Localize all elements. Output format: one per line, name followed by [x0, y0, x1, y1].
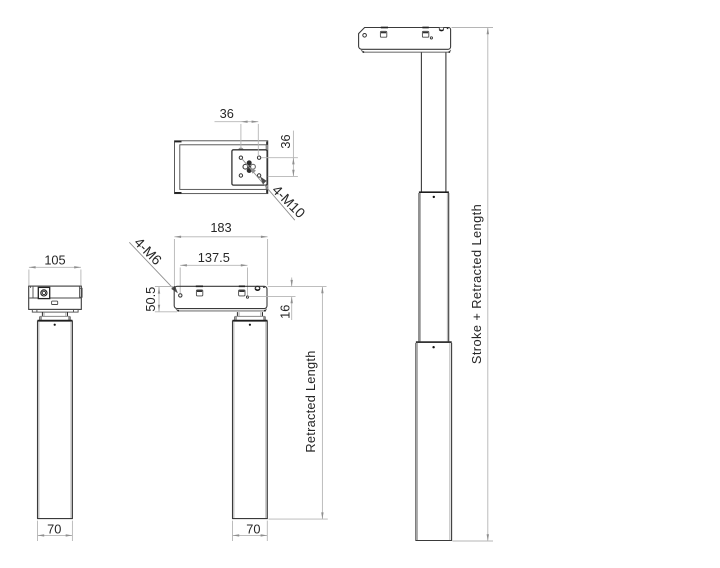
- svg-text:137.5: 137.5: [198, 250, 230, 265]
- svg-text:70: 70: [47, 522, 61, 537]
- svg-text:Retracted Length: Retracted Length: [303, 350, 318, 452]
- svg-text:Stroke + Retracted Length: Stroke + Retracted Length: [469, 204, 484, 364]
- svg-text:36: 36: [220, 106, 234, 121]
- svg-text:183: 183: [210, 220, 231, 235]
- svg-text:36: 36: [278, 134, 293, 148]
- svg-text:105: 105: [44, 253, 65, 268]
- svg-text:16: 16: [278, 305, 293, 319]
- svg-text:50.5: 50.5: [143, 287, 158, 312]
- svg-text:70: 70: [246, 522, 260, 537]
